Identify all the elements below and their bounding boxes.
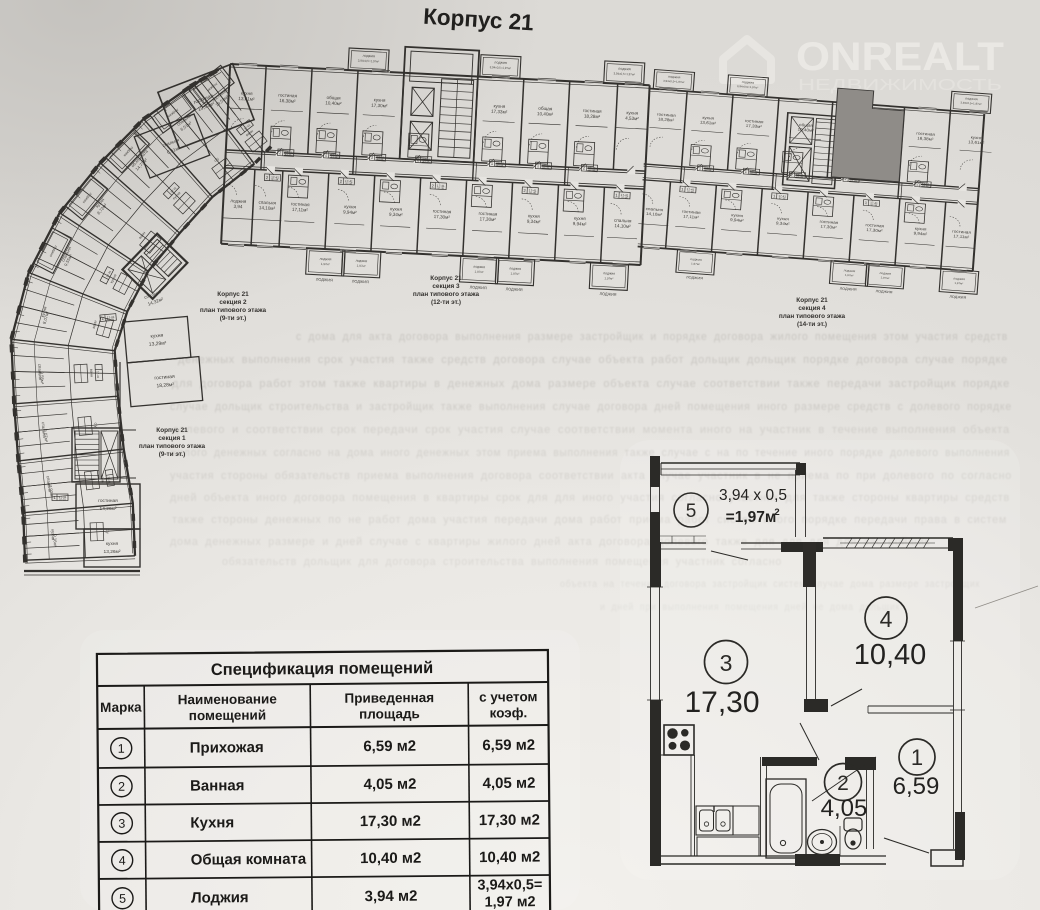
svg-text:4,53м²: 4,53м² bbox=[625, 116, 639, 122]
svg-text:97-35: 97-35 bbox=[529, 191, 536, 195]
svg-text:лоджия: лоджия bbox=[167, 108, 179, 119]
svg-text:ЛОДЖИЯ: ЛОДЖИЯ bbox=[875, 289, 893, 294]
svg-text:НЕДВИЖИМОСТЬ: НЕДВИЖИМОСТЬ bbox=[798, 77, 1002, 94]
svg-text:ONREALT: ONREALT bbox=[796, 35, 1004, 79]
svg-text:10,40м²: 10,40м² bbox=[325, 100, 342, 106]
svg-text:9,94м²: 9,94м² bbox=[573, 221, 587, 227]
svg-text:1,97м²: 1,97м² bbox=[510, 271, 519, 275]
svg-text:2: 2 bbox=[266, 175, 269, 180]
svg-text:3,94х0,5=1,97м²: 3,94х0,5=1,97м² bbox=[613, 71, 635, 76]
svg-text:ЛОДЖИЯ: ЛОДЖИЯ bbox=[949, 295, 967, 300]
svg-text:дней объекта иного договора по: дней объекта иного договора помещения в … bbox=[170, 492, 1010, 504]
svg-text:14,10м²: 14,10м² bbox=[259, 205, 276, 211]
svg-text:с учетом: с учетом bbox=[479, 689, 538, 705]
svg-text:объекта на течение договора за: объекта на течение договора застройщик с… bbox=[560, 578, 980, 590]
svg-text:14,10м²: 14,10м² bbox=[646, 211, 663, 217]
svg-text:97-35: 97-35 bbox=[542, 166, 549, 170]
svg-text:1,97м²: 1,97м² bbox=[321, 262, 330, 266]
svg-text:4,05 м2: 4,05 м2 bbox=[364, 776, 417, 793]
svg-text:Общая комната: Общая комната bbox=[191, 851, 307, 869]
svg-text:коэф.: коэф. bbox=[490, 705, 528, 720]
svg-text:план типового этажа: план типового этажа bbox=[779, 313, 846, 320]
svg-text:17,30: 17,30 bbox=[684, 686, 759, 719]
svg-text:97-35: 97-35 bbox=[621, 195, 628, 199]
svg-text:случае дольщик строительства и: случае дольщик строительства и застройщи… bbox=[170, 401, 1012, 413]
svg-text:3,94х0,5=1,97м²: 3,94х0,5=1,97м² bbox=[358, 58, 380, 63]
svg-text:1: 1 bbox=[745, 169, 748, 174]
svg-text:17,33м²: 17,33м² bbox=[746, 123, 763, 129]
svg-text:ЛОДЖИЯ: ЛОДЖИЯ bbox=[840, 287, 858, 292]
svg-text:1: 1 bbox=[118, 742, 125, 756]
svg-text:10,40 м2: 10,40 м2 bbox=[479, 849, 540, 867]
svg-text:денежных выполнения срок участ: денежных выполнения срок участия также с… bbox=[178, 354, 1008, 366]
svg-text:Корпус 21: Корпус 21 bbox=[217, 291, 249, 298]
svg-text:17,30 м2: 17,30 м2 bbox=[479, 812, 540, 830]
svg-text:лоджия: лоджия bbox=[742, 80, 755, 85]
svg-text:план типового этажа: план типового этажа bbox=[139, 443, 206, 450]
svg-text:5,07м²: 5,07м² bbox=[43, 429, 49, 443]
svg-text:и дней при выполнения помещени: и дней при выполнения помещения дней не … bbox=[600, 602, 900, 613]
svg-text:1,97м²: 1,97м² bbox=[880, 276, 889, 280]
svg-text:для договора работ этом также: для договора работ этом также квартиры в… bbox=[172, 378, 1010, 390]
svg-text:17,11м²: 17,11м² bbox=[292, 207, 309, 213]
svg-text:лоджия: лоджия bbox=[355, 259, 367, 264]
svg-text:10,40: 10,40 bbox=[854, 639, 927, 671]
svg-text:лоджия: лоджия bbox=[509, 266, 521, 271]
svg-text:97-35: 97-35 bbox=[779, 197, 786, 200]
svg-text:Корпус 21: Корпус 21 bbox=[423, 4, 535, 36]
svg-text:2: 2 bbox=[340, 179, 343, 184]
svg-text:план типового этажа: план типового этажа bbox=[200, 307, 267, 314]
svg-text:97-35: 97-35 bbox=[331, 155, 338, 159]
svg-text:3,94 х 0,5: 3,94 х 0,5 bbox=[719, 487, 787, 504]
svg-text:1: 1 bbox=[773, 194, 776, 199]
svg-text:1: 1 bbox=[699, 166, 702, 171]
svg-text:план типового этажа: план типового этажа bbox=[413, 291, 480, 298]
svg-text:6,59 м2: 6,59 м2 bbox=[482, 737, 535, 754]
svg-text:ЛОДЖИЯ: ЛОДЖИЯ bbox=[352, 279, 369, 284]
svg-text:97-35: 97-35 bbox=[850, 180, 857, 183]
svg-text:4: 4 bbox=[880, 606, 893, 632]
svg-text:ЛОДЖИЯ: ЛОДЖИЯ bbox=[686, 275, 704, 280]
svg-text:2: 2 bbox=[916, 182, 919, 187]
svg-text:97-35: 97-35 bbox=[285, 153, 292, 157]
svg-text:97-35: 97-35 bbox=[377, 157, 384, 161]
svg-text:9,94м²: 9,94м² bbox=[913, 231, 928, 237]
svg-text:17,30м²: 17,30м² bbox=[479, 216, 496, 222]
svg-text:лоджия: лоджия bbox=[965, 97, 978, 102]
svg-text:17,30м²: 17,30м² bbox=[866, 227, 883, 233]
svg-text:13,61м²: 13,61м² bbox=[968, 139, 985, 145]
svg-text:Наименование: Наименование bbox=[178, 691, 278, 707]
svg-text:Корпус 21: Корпус 21 bbox=[796, 297, 828, 304]
svg-text:9,34м²: 9,34м² bbox=[389, 212, 403, 218]
svg-text:97-35: 97-35 bbox=[704, 169, 711, 172]
svg-text:6,59 м2: 6,59 м2 bbox=[363, 738, 416, 755]
svg-text:1,97м²: 1,97м² bbox=[845, 273, 854, 277]
svg-text:17,30м²: 17,30м² bbox=[820, 224, 837, 230]
svg-text:9,94м²: 9,94м² bbox=[343, 209, 357, 215]
svg-text:17-41: 17-41 bbox=[96, 371, 100, 379]
svg-text:18,28м²: 18,28м² bbox=[658, 117, 675, 123]
svg-text:4,05 м2: 4,05 м2 bbox=[483, 775, 536, 792]
svg-text:9,34м²: 9,34м² bbox=[776, 221, 791, 227]
svg-text:=1,97м: =1,97м bbox=[726, 509, 777, 526]
svg-text:9,16м²: 9,16м² bbox=[52, 534, 58, 548]
svg-text:97-35: 97-35 bbox=[59, 497, 66, 501]
svg-text:6,59: 6,59 bbox=[893, 773, 940, 800]
svg-text:Кухня: Кухня bbox=[190, 814, 234, 831]
svg-text:с дома для акта договора выпол: с дома для акта договора выполнения разм… bbox=[296, 331, 1008, 343]
svg-text:97-35: 97-35 bbox=[345, 181, 352, 185]
svg-text:97-35: 97-35 bbox=[437, 186, 444, 190]
svg-text:секция 4: секция 4 bbox=[798, 305, 826, 312]
svg-text:17,30м²: 17,30м² bbox=[371, 103, 388, 109]
svg-text:обязательств дольщик для догов: обязательств дольщик для договора строит… bbox=[222, 556, 782, 568]
svg-text:лоджия: лоджия bbox=[473, 265, 485, 270]
svg-text:Спецификация помещений: Спецификация помещений bbox=[211, 659, 434, 679]
svg-text:1: 1 bbox=[681, 187, 684, 192]
svg-text:1,97м²: 1,97м² bbox=[474, 270, 483, 274]
svg-text:9,34м²: 9,34м² bbox=[527, 219, 541, 225]
svg-text:2: 2 bbox=[101, 316, 104, 321]
svg-text:17,30 м2: 17,30 м2 bbox=[360, 813, 421, 831]
svg-text:2: 2 bbox=[118, 780, 125, 794]
svg-text:18,28м²: 18,28м² bbox=[584, 113, 601, 119]
svg-text:17,30м²: 17,30м² bbox=[434, 214, 451, 220]
svg-text:1: 1 bbox=[615, 193, 618, 198]
svg-text:97-35: 97-35 bbox=[687, 190, 694, 193]
svg-text:97-35: 97-35 bbox=[107, 317, 115, 322]
svg-text:ЛОДЖИЯ: ЛОДЖИЯ bbox=[316, 278, 333, 283]
svg-text:лоджия: лоджия bbox=[319, 257, 331, 262]
svg-text:1: 1 bbox=[911, 745, 923, 770]
svg-text:97-35: 97-35 bbox=[796, 176, 803, 179]
svg-text:Марка: Марка bbox=[100, 700, 142, 715]
svg-text:2: 2 bbox=[431, 183, 434, 188]
svg-text:17,11м²: 17,11м² bbox=[953, 234, 970, 240]
svg-text:2: 2 bbox=[523, 188, 526, 193]
svg-text:3: 3 bbox=[118, 817, 125, 831]
svg-text:3,94х0,5=1,97м²: 3,94х0,5=1,97м² bbox=[490, 65, 512, 70]
svg-text:гостиная: гостиная bbox=[98, 499, 118, 504]
svg-text:5: 5 bbox=[686, 501, 697, 522]
svg-text:(12-ти эт.): (12-ти эт.) bbox=[431, 299, 461, 306]
svg-text:97-35: 97-35 bbox=[496, 163, 503, 167]
svg-text:9,55м²: 9,55м² bbox=[39, 371, 45, 385]
svg-text:3,94: 3,94 bbox=[233, 204, 243, 209]
svg-text:10,40 м2: 10,40 м2 bbox=[360, 850, 421, 868]
svg-text:Прихожая: Прихожая bbox=[190, 739, 264, 757]
svg-text:жилого денежных согласно на до: жилого денежных согласно на дома иного д… bbox=[170, 447, 1010, 459]
svg-text:участия стороны обязательств п: участия стороны обязательств приема выпо… bbox=[170, 470, 1012, 482]
svg-text:помещений: помещений bbox=[189, 707, 267, 723]
svg-text:кухня: кухня bbox=[150, 333, 163, 340]
svg-text:13,61м²: 13,61м² bbox=[700, 120, 717, 126]
svg-text:секция 3: секция 3 bbox=[432, 283, 460, 290]
svg-text:3,94х0,5=: 3,94х0,5= bbox=[477, 877, 542, 894]
svg-text:97-35: 97-35 bbox=[870, 204, 877, 207]
svg-text:Приведенная: Приведенная bbox=[344, 690, 434, 706]
svg-text:97-35: 97-35 bbox=[588, 168, 595, 172]
svg-text:16,38м²: 16,38м² bbox=[279, 98, 296, 104]
svg-text:лоджия: лоджия bbox=[362, 54, 375, 59]
svg-text:2: 2 bbox=[837, 772, 849, 795]
svg-text:1: 1 bbox=[865, 200, 868, 205]
svg-text:17,11м²: 17,11м² bbox=[683, 214, 700, 220]
svg-text:долевого и соответствии срок п: долевого и соответствии срок передачи ср… bbox=[172, 424, 1010, 436]
svg-text:лоджия: лоджия bbox=[494, 60, 507, 65]
svg-text:Ванная: Ванная bbox=[190, 777, 245, 794]
svg-text:10,40м²: 10,40м² bbox=[537, 111, 554, 117]
svg-text:(14-ти эт.): (14-ти эт.) bbox=[797, 321, 827, 328]
svg-text:13,26м²: 13,26м² bbox=[104, 549, 121, 555]
svg-text:3,94х0,5=1,97м²: 3,94х0,5=1,97м² bbox=[663, 79, 685, 84]
svg-text:площадь: площадь bbox=[359, 706, 420, 722]
svg-text:14,10м²: 14,10м² bbox=[614, 223, 631, 229]
svg-text:4,05: 4,05 bbox=[821, 795, 868, 822]
svg-text:13,29м²: 13,29м² bbox=[149, 340, 167, 348]
svg-text:1,97м²: 1,97м² bbox=[604, 276, 613, 280]
svg-text:лоджия: лоджия bbox=[618, 67, 631, 72]
svg-text:3,94 м2: 3,94 м2 bbox=[365, 888, 418, 905]
svg-text:1,97м²: 1,97м² bbox=[691, 262, 700, 266]
svg-text:Корпус 21: Корпус 21 bbox=[156, 427, 188, 434]
svg-text:97-35: 97-35 bbox=[922, 185, 929, 188]
svg-text:1: 1 bbox=[53, 495, 56, 500]
svg-text:97-35: 97-35 bbox=[750, 172, 757, 175]
svg-text:1,97м²: 1,97м² bbox=[954, 281, 963, 285]
svg-text:ЛОДЖИЯ: ЛОДЖИЯ bbox=[506, 287, 523, 292]
svg-text:1,97м²: 1,97м² bbox=[357, 264, 366, 268]
svg-text:(9-ти эт.): (9-ти эт.) bbox=[220, 315, 247, 322]
svg-text:лоджия: лоджия bbox=[49, 245, 58, 258]
svg-text:9,94м²: 9,94м² bbox=[730, 217, 745, 223]
svg-text:лоджия: лоджия bbox=[668, 75, 681, 80]
svg-text:17,33м²: 17,33м² bbox=[491, 109, 508, 115]
svg-text:(9-ти эт.): (9-ти эт.) bbox=[159, 451, 186, 458]
svg-text:4: 4 bbox=[119, 854, 126, 868]
svg-text:3: 3 bbox=[720, 650, 733, 676]
svg-text:17-41: 17-41 bbox=[107, 476, 112, 484]
svg-text:ЛОДЖИЯ: ЛОДЖИЯ bbox=[470, 285, 487, 290]
svg-text:лоджия: лоджия bbox=[603, 271, 615, 276]
svg-text:16,38м²: 16,38м² bbox=[917, 136, 934, 142]
svg-text:2: 2 bbox=[774, 507, 779, 518]
svg-text:секция 2: секция 2 bbox=[219, 299, 247, 306]
svg-text:кухня: кухня bbox=[106, 542, 119, 547]
svg-text:ЛОДЖИЯ: ЛОДЖИЯ bbox=[599, 292, 616, 297]
svg-text:Лоджия: Лоджия bbox=[191, 889, 249, 907]
svg-text:97-35: 97-35 bbox=[271, 178, 278, 182]
svg-text:3,94х0,5=1,97м²: 3,94х0,5=1,97м² bbox=[960, 101, 982, 106]
svg-text:14,26м²: 14,26м² bbox=[100, 506, 117, 512]
svg-text:1,97 м2: 1,97 м2 bbox=[484, 894, 535, 910]
svg-text:3,94х0,5=1,97м²: 3,94х0,5=1,97м² bbox=[737, 84, 759, 89]
svg-text:Корпус 21: Корпус 21 bbox=[430, 275, 462, 282]
svg-text:также стороны денежных по не р: также стороны денежных по не работ дома … bbox=[172, 514, 1007, 526]
svg-text:секция 1: секция 1 bbox=[158, 435, 186, 442]
svg-text:5: 5 bbox=[119, 892, 126, 906]
